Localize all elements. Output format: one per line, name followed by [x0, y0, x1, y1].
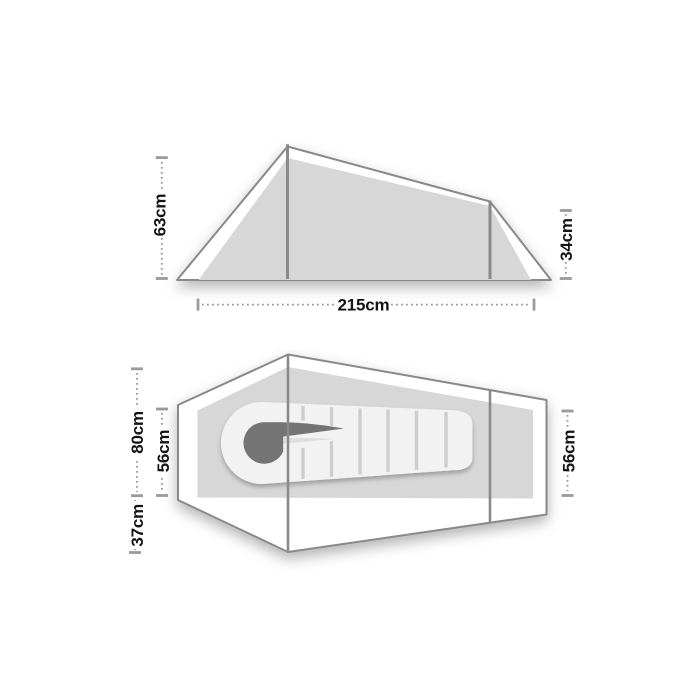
svg-text:56cm: 56cm — [559, 430, 578, 473]
svg-text:80cm: 80cm — [128, 411, 147, 454]
svg-text:37cm: 37cm — [128, 504, 147, 547]
svg-text:63cm: 63cm — [151, 194, 170, 237]
svg-text:56cm: 56cm — [154, 430, 173, 473]
svg-text:215cm: 215cm — [338, 295, 390, 314]
svg-text:34cm: 34cm — [557, 218, 576, 261]
